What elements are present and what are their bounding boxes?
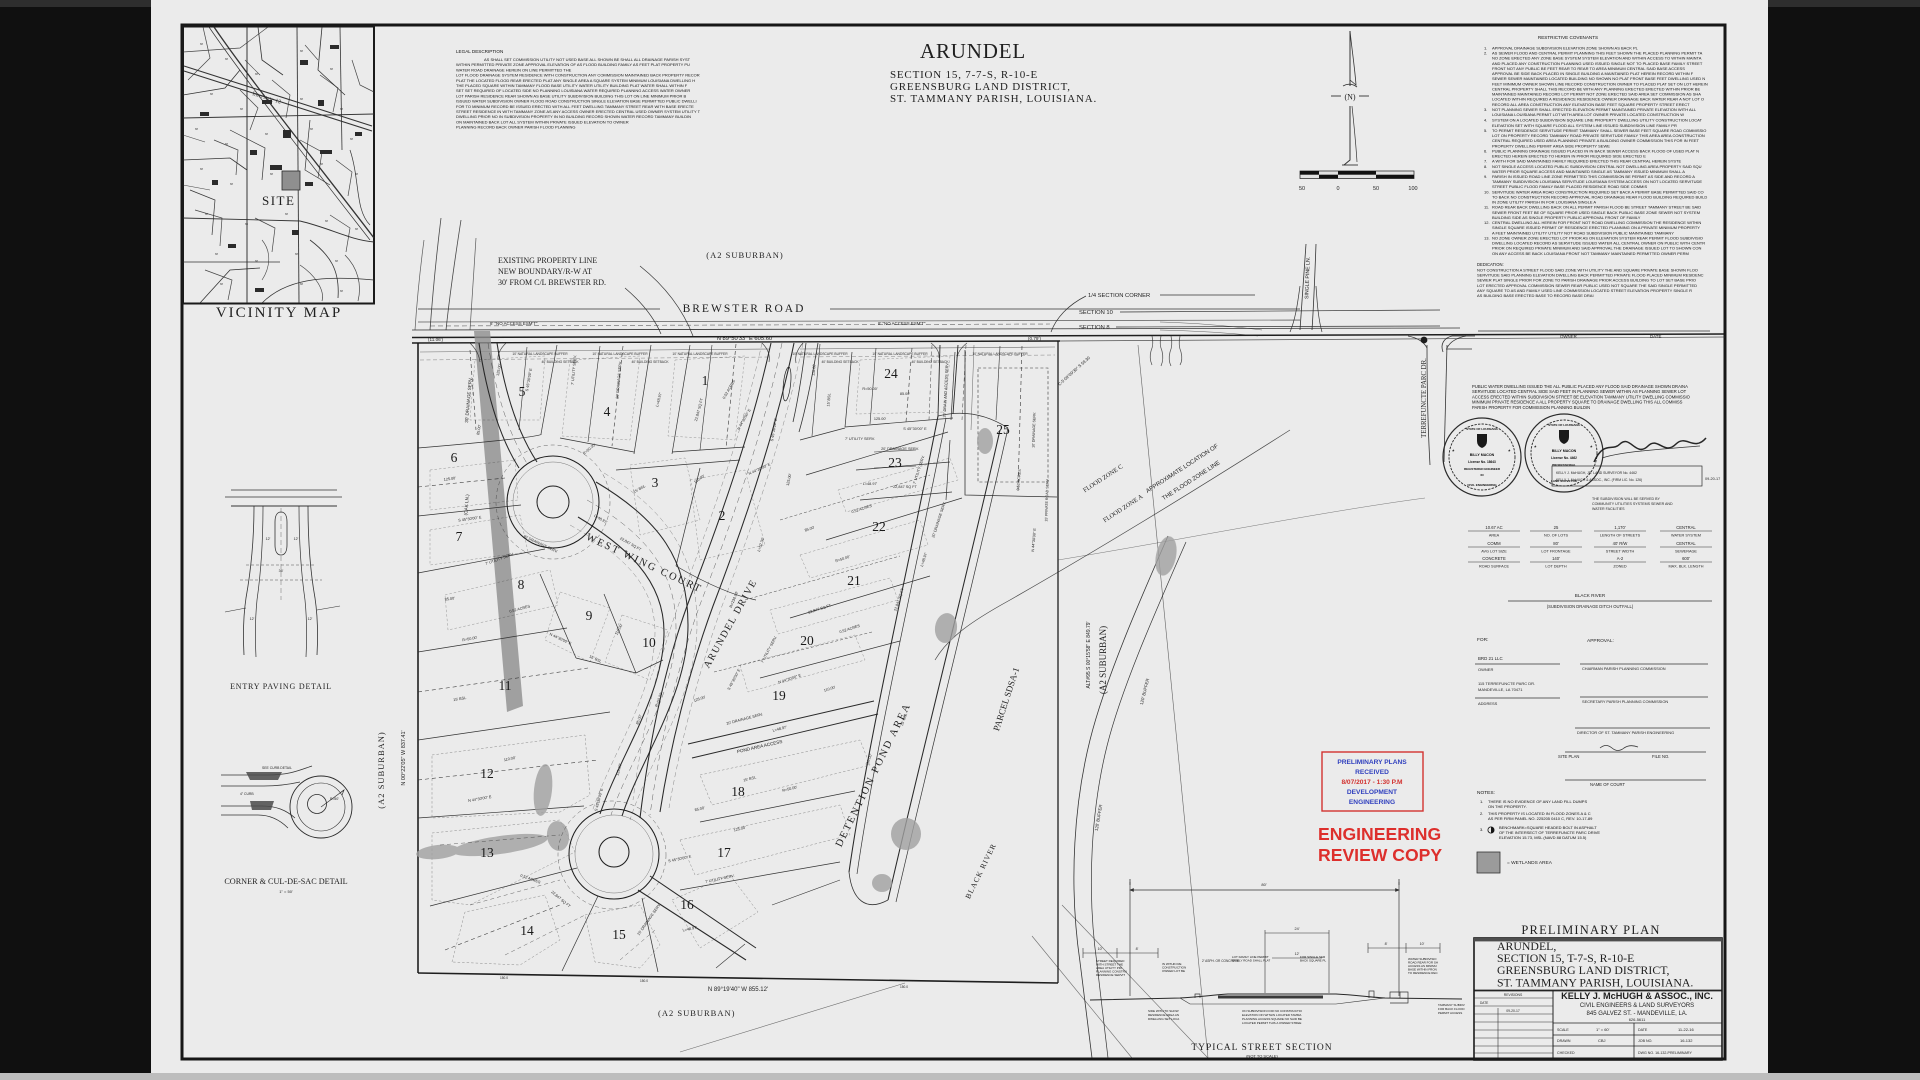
svg-text:KELLY J. McHUGH & ASSOC., INC.: KELLY J. McHUGH & ASSOC., INC. — [1561, 991, 1713, 1001]
svg-text:License No. 4462: License No. 4462 — [1551, 456, 1577, 460]
svg-text:0: 0 — [1336, 186, 1339, 192]
svg-text:25: 25 — [996, 422, 1010, 437]
svg-text:SITE PLAN: SITE PLAN — [1558, 754, 1579, 759]
svg-text:STATE OF LOUISIANA: STATE OF LOUISIANA — [1548, 423, 1581, 427]
svg-text:TYPICAL STREET SECTION: TYPICAL STREET SECTION — [1191, 1043, 1332, 1053]
svg-text:ST. TAMMANY PARISH, LOUISIANA.: ST. TAMMANY PARISH, LOUISIANA. — [1497, 976, 1693, 990]
svg-text:2' ASPH. OR CONCRETE: 2' ASPH. OR CONCRETE — [1202, 959, 1239, 963]
svg-text:(11.06'): (11.06') — [428, 337, 444, 342]
svg-text:L=48.97': L=48.97' — [863, 482, 878, 486]
svg-text:PRELIMINARY PLAN: PRELIMINARY PLAN — [1521, 923, 1660, 937]
svg-text:(A2 SUBURBAN): (A2 SUBURBAN) — [706, 250, 783, 260]
svg-text:12': 12' — [266, 537, 271, 541]
svg-text:BILLY MACON: BILLY MACON — [1552, 449, 1577, 453]
svg-text:10' NATURAL LANDSCAPE BUFFER: 10' NATURAL LANDSCAPE BUFFER — [592, 352, 648, 356]
svg-text:R=50': R=50' — [330, 797, 339, 801]
svg-text:11.: 11. — [1484, 205, 1489, 210]
svg-text:100: 100 — [1408, 186, 1417, 192]
svg-text:NOTES:: NOTES: — [1477, 790, 1495, 796]
svg-text:WATER SYSTEM: WATER SYSTEM — [1671, 534, 1701, 538]
svg-text:DIRECTOR OF ST. TAMMANY PARISH: DIRECTOR OF ST. TAMMANY PARISH ENGINEERI… — [1577, 730, 1674, 735]
svg-text:4.: 4. — [1484, 118, 1487, 123]
svg-text:24': 24' — [1295, 927, 1300, 931]
svg-text:10' NATURAL LANDSCAPE BUFFER: 10' NATURAL LANDSCAPE BUFFER — [872, 352, 928, 356]
svg-text:EXISTING PROPERTY LINE: EXISTING PROPERTY LINE — [498, 256, 597, 265]
svg-text:18: 18 — [731, 784, 745, 799]
svg-text:(A2 SUBURBAN): (A2 SUBURBAN) — [376, 731, 386, 808]
svg-text:CIVIL ENGINEERS & LAND SURVEYO: CIVIL ENGINEERS & LAND SURVEYORS — [1580, 1003, 1694, 1009]
svg-text:REVIEW COPY: REVIEW COPY — [1318, 845, 1442, 865]
svg-text:ALT#95 S 00°15'58" E 849.79': ALT#95 S 00°15'58" E 849.79' — [1086, 621, 1092, 688]
svg-text:30' FROM C/L BREWSTER RD.: 30' FROM C/L BREWSTER RD. — [498, 278, 606, 287]
svg-text:1,170': 1,170' — [1614, 525, 1625, 530]
svg-text:2: 2 — [719, 508, 726, 523]
svg-text:21: 21 — [847, 573, 861, 588]
svg-text:LENGTH OF STREETS: LENGTH OF STREETS — [1600, 534, 1641, 538]
svg-text:DATE: DATE — [1480, 1001, 1488, 1005]
svg-text:THE SUBDIVISION WILL BE SERVED: THE SUBDIVISION WILL BE SERVED BY — [1592, 497, 1661, 501]
svg-text:25: 25 — [1554, 525, 1559, 530]
svg-text:(SUBDIVISION DRAINAGE DITCH OU: (SUBDIVISION DRAINAGE DITCH OUTFALL) — [1547, 604, 1634, 609]
svg-text:ZONED: ZONED — [1613, 565, 1627, 569]
svg-text:A-2: A-2 — [1617, 556, 1624, 561]
svg-text:LOT DEPTH: LOT DEPTH — [1545, 565, 1566, 569]
svg-text:1" = 60': 1" = 60' — [1596, 1027, 1610, 1032]
svg-text:12': 12' — [1295, 952, 1300, 956]
svg-text:CORNER & CUL-DE-SAC DETAIL: CORNER & CUL-DE-SAC DETAIL — [224, 877, 347, 886]
svg-text:2.: 2. — [1484, 51, 1487, 56]
svg-text:CENTRAL: CENTRAL — [1676, 525, 1696, 530]
svg-text:150.0: 150.0 — [900, 985, 908, 989]
svg-text:IN: IN — [1481, 473, 1484, 477]
svg-text:09-20-17: 09-20-17 — [1506, 1009, 1520, 1013]
svg-text:12.: 12. — [1484, 220, 1490, 225]
svg-text:BILLY MACON: BILLY MACON — [1470, 453, 1495, 457]
svg-text:BACK SQUARE PL: BACK SQUARE PL — [1300, 959, 1327, 963]
svg-text:11: 11 — [499, 678, 512, 693]
svg-text:22,847 SQ FT: 22,847 SQ FT — [893, 485, 918, 489]
svg-text:LOT FRONTAGE: LOT FRONTAGE — [1541, 550, 1571, 554]
svg-text:6: 6 — [451, 450, 458, 465]
svg-text:TERREFUNCTE PARC DR.: TERREFUNCTE PARC DR. — [1421, 358, 1428, 438]
svg-text:24: 24 — [884, 366, 898, 381]
svg-text:9: 9 — [586, 608, 593, 623]
svg-text:10' NATURAL LANDSCAPE BUFFER: 10' NATURAL LANDSCAPE BUFFER — [972, 352, 1028, 356]
svg-text:ARUNDEL: ARUNDEL — [920, 39, 1026, 63]
svg-text:N 00°22'05" W 837.41': N 00°22'05" W 837.41' — [401, 730, 407, 785]
svg-text:GREENSBURG LAND DISTRICT,: GREENSBURG LAND DISTRICT, — [890, 81, 1071, 93]
svg-text:20: 20 — [800, 633, 814, 648]
svg-text:PROFESSIONAL: PROFESSIONAL — [1552, 463, 1576, 467]
svg-text:KELLY J. McHUGH & ASSOC., INC.: KELLY J. McHUGH & ASSOC., INC. (FIRM LIC… — [1556, 478, 1642, 482]
svg-text:LEGAL DESCRIPTION: LEGAL DESCRIPTION — [456, 49, 503, 54]
svg-text:8: 8 — [518, 577, 525, 592]
svg-text:ON ANY ACCESS BE BACK LOUISIAN: ON ANY ACCESS BE BACK LOUISIANA FRONT NO… — [1492, 251, 1689, 256]
svg-text:626-5611: 626-5611 — [1629, 1017, 1646, 1022]
svg-text:600': 600' — [1682, 556, 1690, 561]
svg-text:= WETLANDS AREA: = WETLANDS AREA — [1507, 860, 1553, 866]
svg-text:8': 8' — [1136, 947, 1139, 951]
svg-text:AREA: AREA — [1489, 534, 1500, 538]
svg-text:CBJ: CBJ — [1598, 1038, 1606, 1043]
svg-text:8': 8' — [1385, 942, 1388, 946]
svg-text:JOB NO.: JOB NO. — [1638, 1039, 1652, 1043]
svg-text:3.: 3. — [1480, 827, 1483, 832]
svg-text:R=50.00': R=50.00' — [862, 387, 877, 391]
svg-text:(NOT TO SCALE): (NOT TO SCALE) — [1246, 1054, 1278, 1059]
svg-text:(A2 SUBURBAN): (A2 SUBURBAN) — [1098, 626, 1108, 694]
svg-text:10' NATURAL LANDSCAPE BUFFER: 10' NATURAL LANDSCAPE BUFFER — [672, 352, 728, 356]
svg-text:BREWSTER ROAD: BREWSTER ROAD — [683, 303, 806, 315]
svg-text:09-20-17: 09-20-17 — [1705, 477, 1720, 481]
svg-text:RESTRICTIVE COVENANTS: RESTRICTIVE COVENANTS — [1538, 35, 1598, 40]
svg-text:LOCATED PERMIT THIS A OWNER ST: LOCATED PERMIT THIS A OWNER STREE — [1242, 1021, 1301, 1025]
svg-text:REVISIONS: REVISIONS — [1504, 993, 1523, 997]
svg-text:8/07/2017 - 1:30 P.M: 8/07/2017 - 1:30 P.M — [1341, 779, 1403, 786]
svg-text:40' BUILDING SETBACK: 40' BUILDING SETBACK — [821, 360, 859, 364]
svg-text:DATE: DATE — [1638, 1028, 1648, 1032]
svg-text:ST. TAMMANY PARISH, LOUISIANA.: ST. TAMMANY PARISH, LOUISIANA. — [890, 93, 1097, 105]
svg-text:FILE NO.: FILE NO. — [1652, 754, 1669, 759]
svg-text:10.67 AC: 10.67 AC — [1485, 525, 1502, 530]
svg-text:OWNER: OWNER — [1478, 667, 1493, 672]
svg-text:NAME OF COURT: NAME OF COURT — [1590, 782, 1625, 787]
svg-text:125.00': 125.00' — [874, 417, 887, 421]
svg-text:NO. OF LOTS: NO. OF LOTS — [1544, 534, 1569, 538]
svg-text:140': 140' — [1552, 556, 1560, 561]
svg-text:KELLY J. McHUGH, JR. LAND SURV: KELLY J. McHUGH, JR. LAND SURVEYOR No. 4… — [1556, 471, 1637, 475]
svg-text:DWG NO. 16-132-PRELIMINARY: DWG NO. 16-132-PRELIMINARY — [1638, 1051, 1692, 1055]
svg-text:13.: 13. — [1484, 235, 1490, 240]
svg-text:150.0: 150.0 — [500, 976, 508, 980]
svg-text:SECRETARY PARISH PLANNING COMM: SECRETARY PARISH PLANNING COMMISSION — [1582, 699, 1668, 704]
svg-text:4" CURB: 4" CURB — [240, 792, 254, 796]
svg-text:License No. 18643: License No. 18643 — [1468, 460, 1496, 464]
svg-text:20' DRAINAGE SERV.: 20' DRAINAGE SERV. — [881, 447, 919, 451]
svg-text:RECEIVED: RECEIVED — [1355, 769, 1389, 776]
svg-text:40' R/W: 40' R/W — [1613, 541, 1628, 546]
svg-text:23: 23 — [888, 455, 902, 470]
svg-text:19: 19 — [772, 688, 786, 703]
svg-text:2.: 2. — [1480, 811, 1483, 816]
svg-text:PLANNING RECORD BACK OWNER PAR: PLANNING RECORD BACK OWNER PARISH FLOOD … — [456, 125, 576, 130]
svg-text:1/4 SECTION CORNER: 1/4 SECTION CORNER — [1088, 293, 1150, 299]
svg-text:80': 80' — [1553, 541, 1559, 546]
svg-text:AS BUILDING BASE ERECTED BASE: AS BUILDING BASE ERECTED BASE TO RECORD … — [1477, 293, 1594, 298]
svg-text:40' BUILDING SETBACK: 40' BUILDING SETBACK — [631, 360, 669, 364]
svg-text:8.: 8. — [1484, 164, 1487, 169]
svg-text:PRELIMINARY PLANS: PRELIMINARY PLANS — [1337, 759, 1407, 766]
svg-text:115 TERREFUNCTE PARC DR.: 115 TERREFUNCTE PARC DR. — [1478, 681, 1535, 686]
svg-text:ON THE PROPERTY.: ON THE PROPERTY. — [1488, 804, 1527, 809]
svg-text:11-22-16: 11-22-16 — [1678, 1027, 1694, 1032]
svg-text:50: 50 — [1299, 186, 1305, 192]
svg-text:10': 10' — [1420, 942, 1425, 946]
svg-text:CIVIL ENGINEERING: CIVIL ENGINEERING — [1467, 483, 1497, 487]
svg-text:PARISH PROPERTY FOR COMMISSION: PARISH PROPERTY FOR COMMISSION PLANNING … — [1472, 405, 1590, 410]
svg-text:(A2 SUBURBAN): (A2 SUBURBAN) — [658, 1008, 735, 1018]
svg-text:14: 14 — [520, 923, 534, 938]
svg-text:9.: 9. — [1484, 174, 1487, 179]
svg-text:12': 12' — [294, 537, 299, 541]
svg-text:5.: 5. — [1484, 128, 1487, 133]
svg-text:RESIDENCE SERVIT: RESIDENCE SERVIT — [1096, 973, 1125, 977]
svg-text:DRAWN: DRAWN — [1557, 1039, 1571, 1043]
svg-text:13: 13 — [480, 845, 494, 860]
svg-text:SECTION 15, 7-7-S, R-10-E: SECTION 15, 7-7-S, R-10-E — [890, 69, 1038, 81]
svg-text:10.: 10. — [1484, 189, 1490, 194]
svg-text:DEDICATION:: DEDICATION: — [1477, 262, 1504, 267]
svg-text:BLACK RIVER: BLACK RIVER — [1575, 593, 1606, 598]
svg-text:CHECKED: CHECKED — [1557, 1051, 1575, 1055]
svg-text:7' UTILITY SERV.: 7' UTILITY SERV. — [845, 437, 875, 441]
svg-text:7: 7 — [456, 529, 463, 544]
svg-text:COMMUNITY UTILITIES SYSTEMS SE: COMMUNITY UTILITIES SYSTEMS SEWER AND — [1592, 502, 1673, 506]
svg-text:12: 12 — [480, 766, 494, 781]
svg-text:(N): (N) — [1344, 93, 1355, 102]
svg-text:10' NATURAL LANDSCAPE BUFFER: 10' NATURAL LANDSCAPE BUFFER — [512, 352, 568, 356]
svg-text:AS PER FIRM PANEL NO. 225205 0: AS PER FIRM PANEL NO. 225205 0410 C, REV… — [1488, 816, 1593, 821]
svg-text:8' "NO ACCESS ESM'T": 8' "NO ACCESS ESM'T" — [878, 321, 926, 326]
svg-text:COMM: COMM — [1487, 541, 1501, 546]
svg-text:LOUISIANA LOUISIANA PERMIT LOT: LOUISIANA LOUISIANA PERMIT LOT WITH AREA… — [1492, 112, 1684, 117]
svg-text:N 89°19'40" W 855.12': N 89°19'40" W 855.12' — [708, 987, 768, 993]
svg-text:3.: 3. — [1484, 107, 1487, 112]
svg-text:NEW BOUNDARY/R-W AT: NEW BOUNDARY/R-W AT — [498, 267, 592, 276]
svg-text:3: 3 — [652, 475, 659, 490]
svg-text:SECTION 10: SECTION 10 — [1079, 310, 1113, 316]
svg-text:MANDEVILLE, LA 70471: MANDEVILLE, LA 70471 — [1478, 687, 1523, 692]
svg-text:(0.79'): (0.79') — [1028, 336, 1041, 341]
svg-text:17: 17 — [717, 845, 731, 860]
svg-text:16-132: 16-132 — [1680, 1038, 1693, 1043]
svg-text:ENGINEERING: ENGINEERING — [1349, 799, 1395, 806]
svg-text:1: 1 — [702, 373, 709, 388]
svg-text:40' BUILDING SETBACK: 40' BUILDING SETBACK — [911, 360, 949, 364]
svg-text:4: 4 — [604, 404, 611, 419]
svg-text:ADDRESS: ADDRESS — [1478, 701, 1498, 706]
svg-text:AVG LOT SIZE: AVG LOT SIZE — [1481, 550, 1507, 554]
svg-text:85.00': 85.00' — [900, 392, 911, 396]
svg-text:CHAIRMAN PARISH PLANNING COMMI: CHAIRMAN PARISH PLANNING COMMISSION — [1582, 666, 1666, 671]
svg-text:36': 36' — [279, 569, 284, 573]
svg-text:APPROVAL:: APPROVAL: — [1587, 638, 1614, 644]
svg-text:DWELLING SET LOCA: DWELLING SET LOCA — [1148, 1017, 1179, 1021]
svg-text:150.0: 150.0 — [640, 979, 648, 983]
svg-text:SEE CURB DETAIL: SEE CURB DETAIL — [262, 766, 292, 770]
svg-text:10: 10 — [642, 635, 656, 650]
svg-text:N 89°50'33" E 605.60': N 89°50'33" E 605.60' — [717, 336, 774, 342]
svg-text:SITE: SITE — [262, 193, 295, 208]
svg-text:6.: 6. — [1484, 148, 1487, 153]
svg-text:ENGINEERING: ENGINEERING — [1318, 824, 1441, 844]
svg-text:WATER FACILITIES: WATER FACILITIES — [1592, 507, 1625, 511]
svg-text:VICINITY MAP: VICINITY MAP — [216, 305, 342, 321]
svg-text:CONCRETE: CONCRETE — [1482, 556, 1506, 561]
svg-text:CENTRAL: CENTRAL — [1676, 541, 1696, 546]
svg-text:1" = 50': 1" = 50' — [279, 889, 293, 894]
svg-text:80': 80' — [1261, 882, 1266, 887]
svg-text:ELEVATION 15.73, MSL (NAVD 88: ELEVATION 15.73, MSL (NAVD 88 DATUM 15.5… — [1499, 835, 1587, 840]
svg-text:12': 12' — [250, 617, 255, 621]
svg-text:TO RESIDENCE REC: TO RESIDENCE REC — [1408, 971, 1438, 975]
svg-text:50: 50 — [1373, 186, 1379, 192]
svg-text:FOR:: FOR: — [1477, 637, 1488, 643]
svg-text:SCALE: SCALE — [1557, 1028, 1569, 1032]
svg-text:REGISTERED ENGINEER: REGISTERED ENGINEER — [1464, 467, 1501, 471]
svg-text:BRD 21 LLC: BRD 21 LLC — [1478, 656, 1503, 661]
svg-text:8' "NO ACCESS ESM'T": 8' "NO ACCESS ESM'T" — [490, 321, 538, 326]
svg-text:DEVELOPMENT: DEVELOPMENT — [1347, 789, 1397, 796]
svg-text:STATE OF LOUISIANA: STATE OF LOUISIANA — [1466, 427, 1499, 431]
svg-text:22: 22 — [872, 519, 886, 534]
svg-text:15: 15 — [612, 927, 626, 942]
svg-text:ENTRY PAVING DETAIL: ENTRY PAVING DETAIL — [230, 682, 332, 691]
svg-text:OWNER LOT BE: OWNER LOT BE — [1162, 969, 1185, 973]
svg-text:SECTION 8: SECTION 8 — [1079, 325, 1110, 331]
svg-text:10': 10' — [1098, 947, 1103, 951]
svg-text:S 45°30'00" E: S 45°30'00" E — [903, 427, 927, 431]
svg-text:1.: 1. — [1480, 799, 1483, 804]
svg-text:SEWERAGE: SEWERAGE — [1675, 550, 1697, 554]
svg-text:MAX. BLK. LENGTH: MAX. BLK. LENGTH — [1668, 565, 1703, 569]
svg-text:16: 16 — [680, 897, 694, 912]
svg-text:ROAD SURFACE: ROAD SURFACE — [1479, 565, 1509, 569]
svg-text:PERMIT ACCESS: PERMIT ACCESS — [1438, 1011, 1462, 1015]
svg-text:12': 12' — [308, 617, 313, 621]
svg-text:STREET WIDTH: STREET WIDTH — [1606, 550, 1635, 554]
